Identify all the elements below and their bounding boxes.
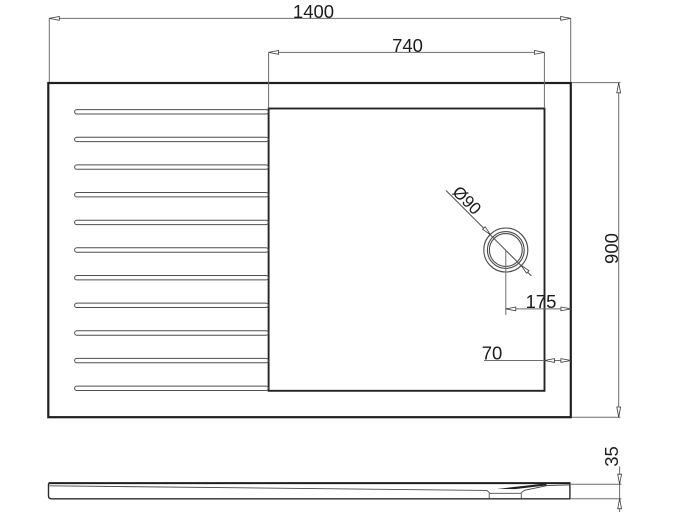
- svg-text:70: 70: [482, 343, 503, 364]
- svg-text:900: 900: [601, 233, 622, 264]
- svg-text:740: 740: [392, 35, 423, 56]
- svg-text:35: 35: [601, 446, 622, 467]
- svg-text:1400: 1400: [293, 1, 334, 22]
- svg-text:175: 175: [526, 291, 557, 312]
